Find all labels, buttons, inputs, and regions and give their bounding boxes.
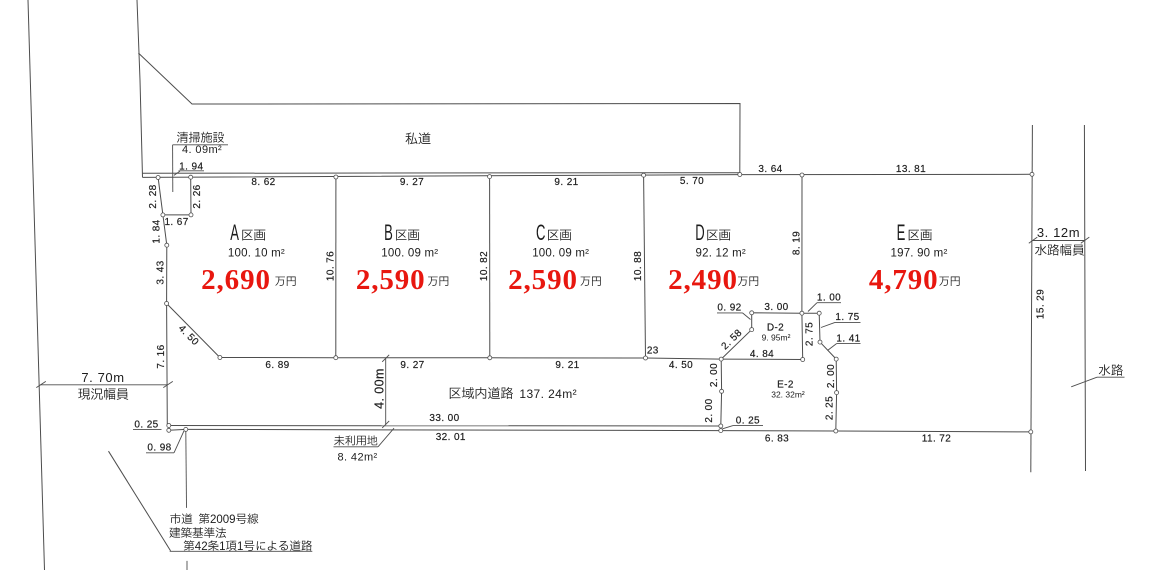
svg-text:2. 00: 2. 00 bbox=[709, 363, 720, 387]
svg-text:32. 32m²: 32. 32m² bbox=[771, 390, 805, 400]
svg-text:1. 00: 1. 00 bbox=[817, 292, 841, 303]
svg-text:23: 23 bbox=[647, 345, 659, 356]
svg-text:8. 62: 8. 62 bbox=[251, 177, 275, 188]
svg-text:5. 70: 5. 70 bbox=[680, 176, 704, 187]
svg-text:2. 26: 2. 26 bbox=[192, 184, 203, 208]
svg-text:9. 95m²: 9. 95m² bbox=[762, 333, 791, 343]
svg-text:0. 25: 0. 25 bbox=[736, 416, 760, 427]
svg-text:1. 84: 1. 84 bbox=[151, 219, 162, 243]
svg-text:2,590: 2,590 bbox=[356, 264, 426, 296]
svg-text:4. 09m²: 4. 09m² bbox=[182, 144, 222, 156]
svg-text:E: E bbox=[897, 219, 906, 245]
svg-text:6. 83: 6. 83 bbox=[765, 434, 789, 445]
svg-text:8. 42m²: 8. 42m² bbox=[338, 451, 378, 463]
svg-text:3. 12m: 3. 12m bbox=[1037, 225, 1080, 240]
svg-text:2. 00: 2. 00 bbox=[826, 364, 837, 388]
svg-text:7. 16: 7. 16 bbox=[156, 344, 167, 368]
svg-text:3. 64: 3. 64 bbox=[758, 164, 782, 175]
svg-text:A: A bbox=[230, 219, 239, 245]
svg-text:4. 84: 4. 84 bbox=[750, 349, 774, 360]
svg-text:10. 82: 10. 82 bbox=[479, 251, 490, 281]
svg-text:9. 21: 9. 21 bbox=[555, 360, 579, 371]
svg-text:137. 24m²: 137. 24m² bbox=[519, 387, 577, 401]
svg-text:4. 50: 4. 50 bbox=[669, 360, 693, 371]
svg-text:2. 25: 2. 25 bbox=[825, 396, 836, 420]
svg-text:C: C bbox=[536, 219, 545, 245]
svg-text:2,490: 2,490 bbox=[668, 264, 738, 296]
svg-text:100. 10 m²: 100. 10 m² bbox=[228, 248, 285, 260]
svg-text:3. 43: 3. 43 bbox=[156, 260, 167, 284]
svg-text:8. 19: 8. 19 bbox=[791, 231, 802, 255]
svg-text:2009: 2009 bbox=[210, 514, 236, 526]
svg-text:33. 00: 33. 00 bbox=[429, 413, 459, 424]
svg-text:D: D bbox=[695, 219, 704, 245]
svg-text:11. 72: 11. 72 bbox=[922, 434, 951, 445]
svg-text:9. 21: 9. 21 bbox=[554, 177, 578, 188]
svg-text:1. 41: 1. 41 bbox=[836, 333, 860, 344]
svg-text:100. 09 m²: 100. 09 m² bbox=[532, 248, 589, 260]
svg-text:2,590: 2,590 bbox=[508, 264, 578, 296]
svg-text:0. 98: 0. 98 bbox=[147, 442, 171, 453]
svg-text:9. 27: 9. 27 bbox=[400, 360, 424, 371]
svg-text:B: B bbox=[384, 219, 393, 245]
svg-text:2. 75: 2. 75 bbox=[805, 322, 816, 346]
svg-text:100. 09 m²: 100. 09 m² bbox=[381, 248, 438, 260]
svg-text:6. 89: 6. 89 bbox=[265, 360, 289, 371]
svg-text:4. 00m: 4. 00m bbox=[372, 368, 386, 409]
svg-text:15. 29: 15. 29 bbox=[1035, 289, 1046, 319]
svg-text:4,790: 4,790 bbox=[869, 264, 939, 296]
svg-text:1. 75: 1. 75 bbox=[835, 312, 859, 323]
svg-text:2. 28: 2. 28 bbox=[148, 184, 159, 208]
svg-text:0. 25: 0. 25 bbox=[134, 419, 158, 430]
svg-text:197. 90 m²: 197. 90 m² bbox=[891, 248, 948, 260]
svg-text:2,690: 2,690 bbox=[201, 264, 271, 296]
svg-text:1. 67: 1. 67 bbox=[164, 217, 188, 228]
svg-text:7. 70m: 7. 70m bbox=[81, 370, 124, 385]
svg-text:92. 12 m²: 92. 12 m² bbox=[696, 248, 746, 260]
svg-text:10. 88: 10. 88 bbox=[633, 251, 644, 281]
svg-text:32. 01: 32. 01 bbox=[436, 432, 466, 443]
svg-text:0. 92: 0. 92 bbox=[717, 303, 741, 314]
svg-text:10. 76: 10. 76 bbox=[325, 251, 336, 281]
svg-text:9. 27: 9. 27 bbox=[400, 177, 424, 188]
svg-text:3. 00: 3. 00 bbox=[764, 302, 788, 313]
svg-text:2. 00: 2. 00 bbox=[704, 398, 715, 422]
svg-text:13. 81: 13. 81 bbox=[896, 164, 926, 175]
